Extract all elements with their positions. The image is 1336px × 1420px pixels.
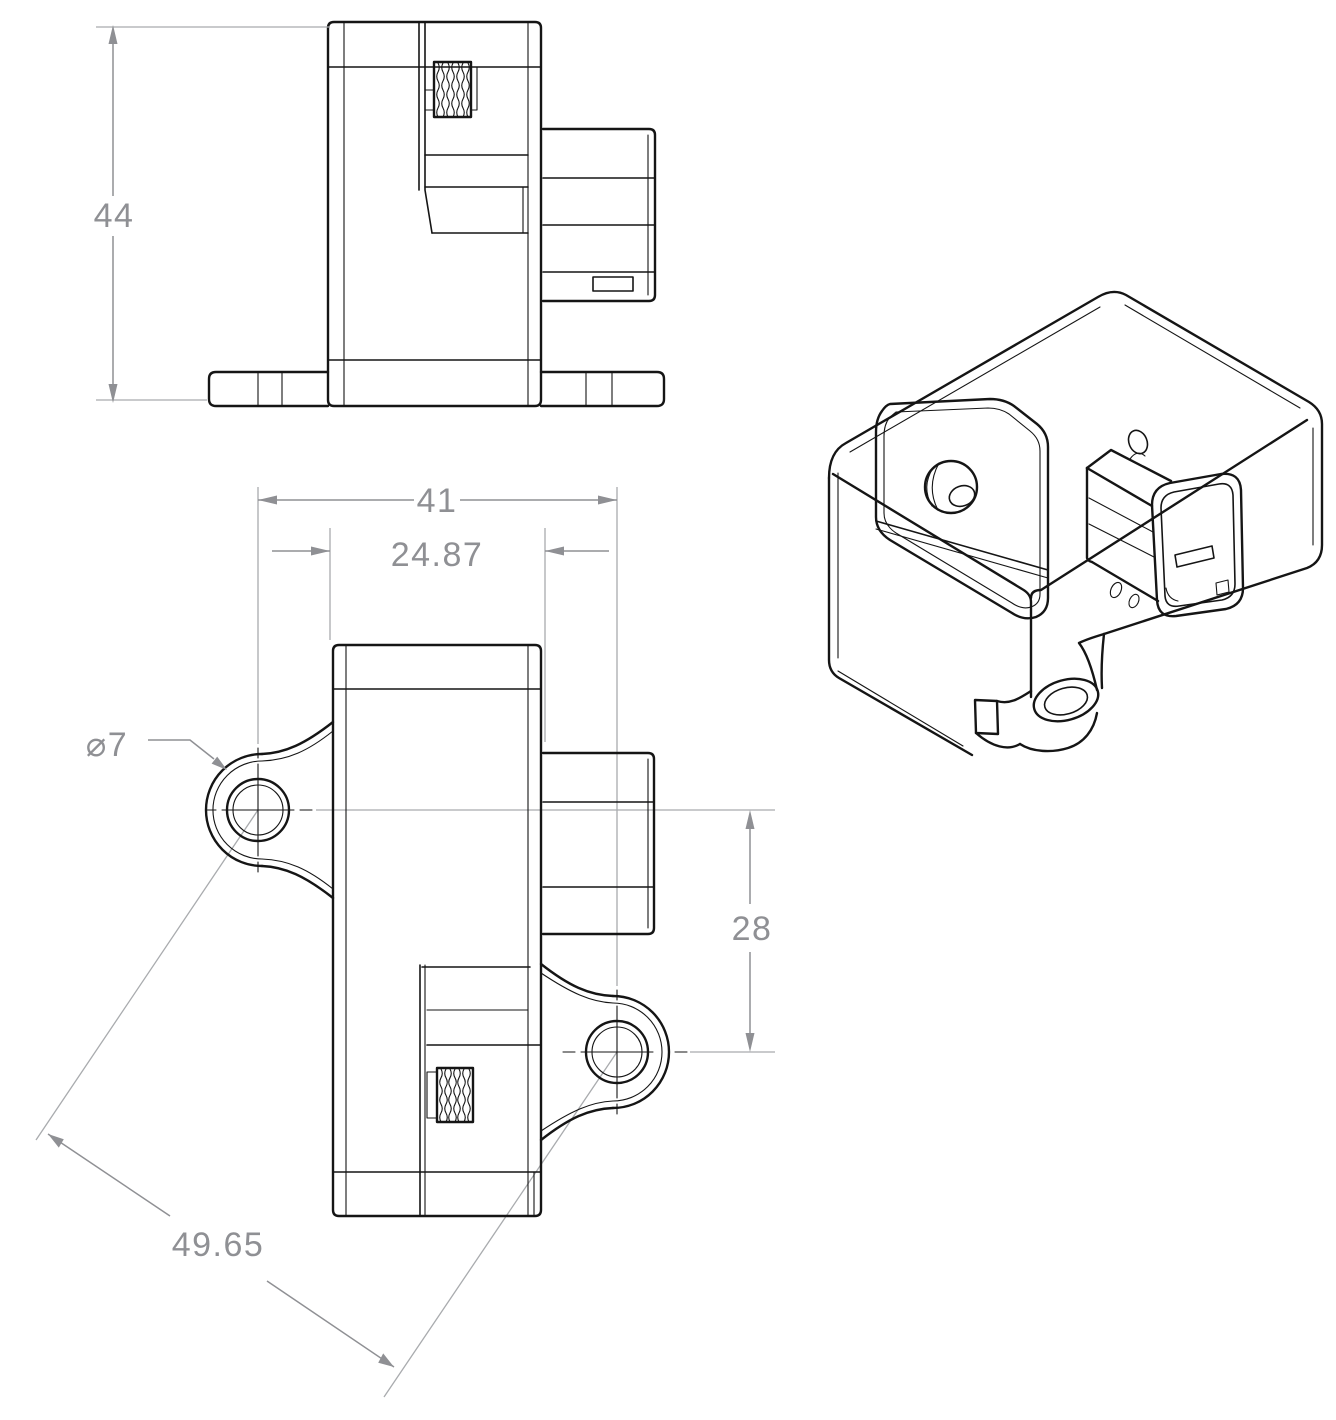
engineering-drawing-page: 44 — [0, 0, 1336, 1420]
dim-label-49-65: 49.65 — [172, 1226, 265, 1264]
dim-label-28: 28 — [732, 910, 773, 948]
front-view-connector — [543, 129, 655, 301]
isometric-view — [829, 292, 1322, 755]
engineering-drawing-canvas: 44 — [0, 0, 1336, 1420]
top-view-extension-lines — [36, 487, 775, 1397]
top-view-threaded-port — [427, 1068, 473, 1122]
iso-connector — [1087, 450, 1243, 616]
top-view: 41 24.87 ⌀7 28 49.65 — [36, 482, 775, 1397]
top-view-right-mounting-tab — [541, 964, 687, 1140]
dim-label-44: 44 — [94, 197, 135, 235]
dimension-hole-span-vertical: 28 — [732, 810, 773, 1052]
dimension-hole-span-diagonal: 49.65 — [48, 1134, 394, 1367]
top-view-body — [333, 645, 541, 1216]
iso-threaded-port — [925, 461, 978, 513]
dim-label-41: 41 — [417, 482, 458, 520]
top-view-left-mounting-tab — [206, 722, 333, 898]
dim-label-diameter-7: ⌀7 — [86, 726, 128, 764]
dim-label-24-87: 24.87 — [391, 536, 484, 574]
dimension-overall-height: 44 — [94, 25, 330, 403]
iso-box-outline — [829, 292, 1322, 755]
front-view: 44 — [94, 22, 664, 406]
iso-pocket — [876, 399, 1048, 618]
dimension-body-width: 24.87 — [272, 536, 609, 574]
front-view-pocket — [419, 22, 528, 233]
dimension-hole-diameter: ⌀7 — [86, 726, 227, 770]
dimension-hole-span-horizontal: 41 — [258, 482, 617, 520]
front-view-threaded-port — [425, 62, 477, 117]
top-view-connector — [543, 753, 654, 934]
iso-face-hole — [1125, 428, 1151, 457]
iso-mounting-lug — [975, 634, 1104, 751]
front-view-mounting-feet — [209, 372, 664, 406]
